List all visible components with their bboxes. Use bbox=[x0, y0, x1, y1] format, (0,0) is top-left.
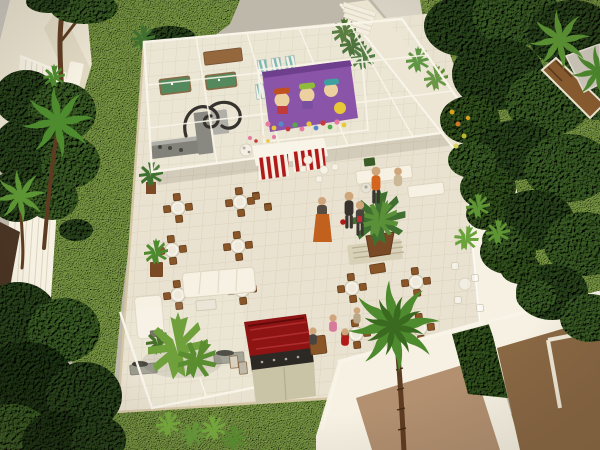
scale-model-photo bbox=[0, 0, 600, 450]
vignette bbox=[0, 0, 600, 450]
model-scene bbox=[0, 0, 600, 450]
